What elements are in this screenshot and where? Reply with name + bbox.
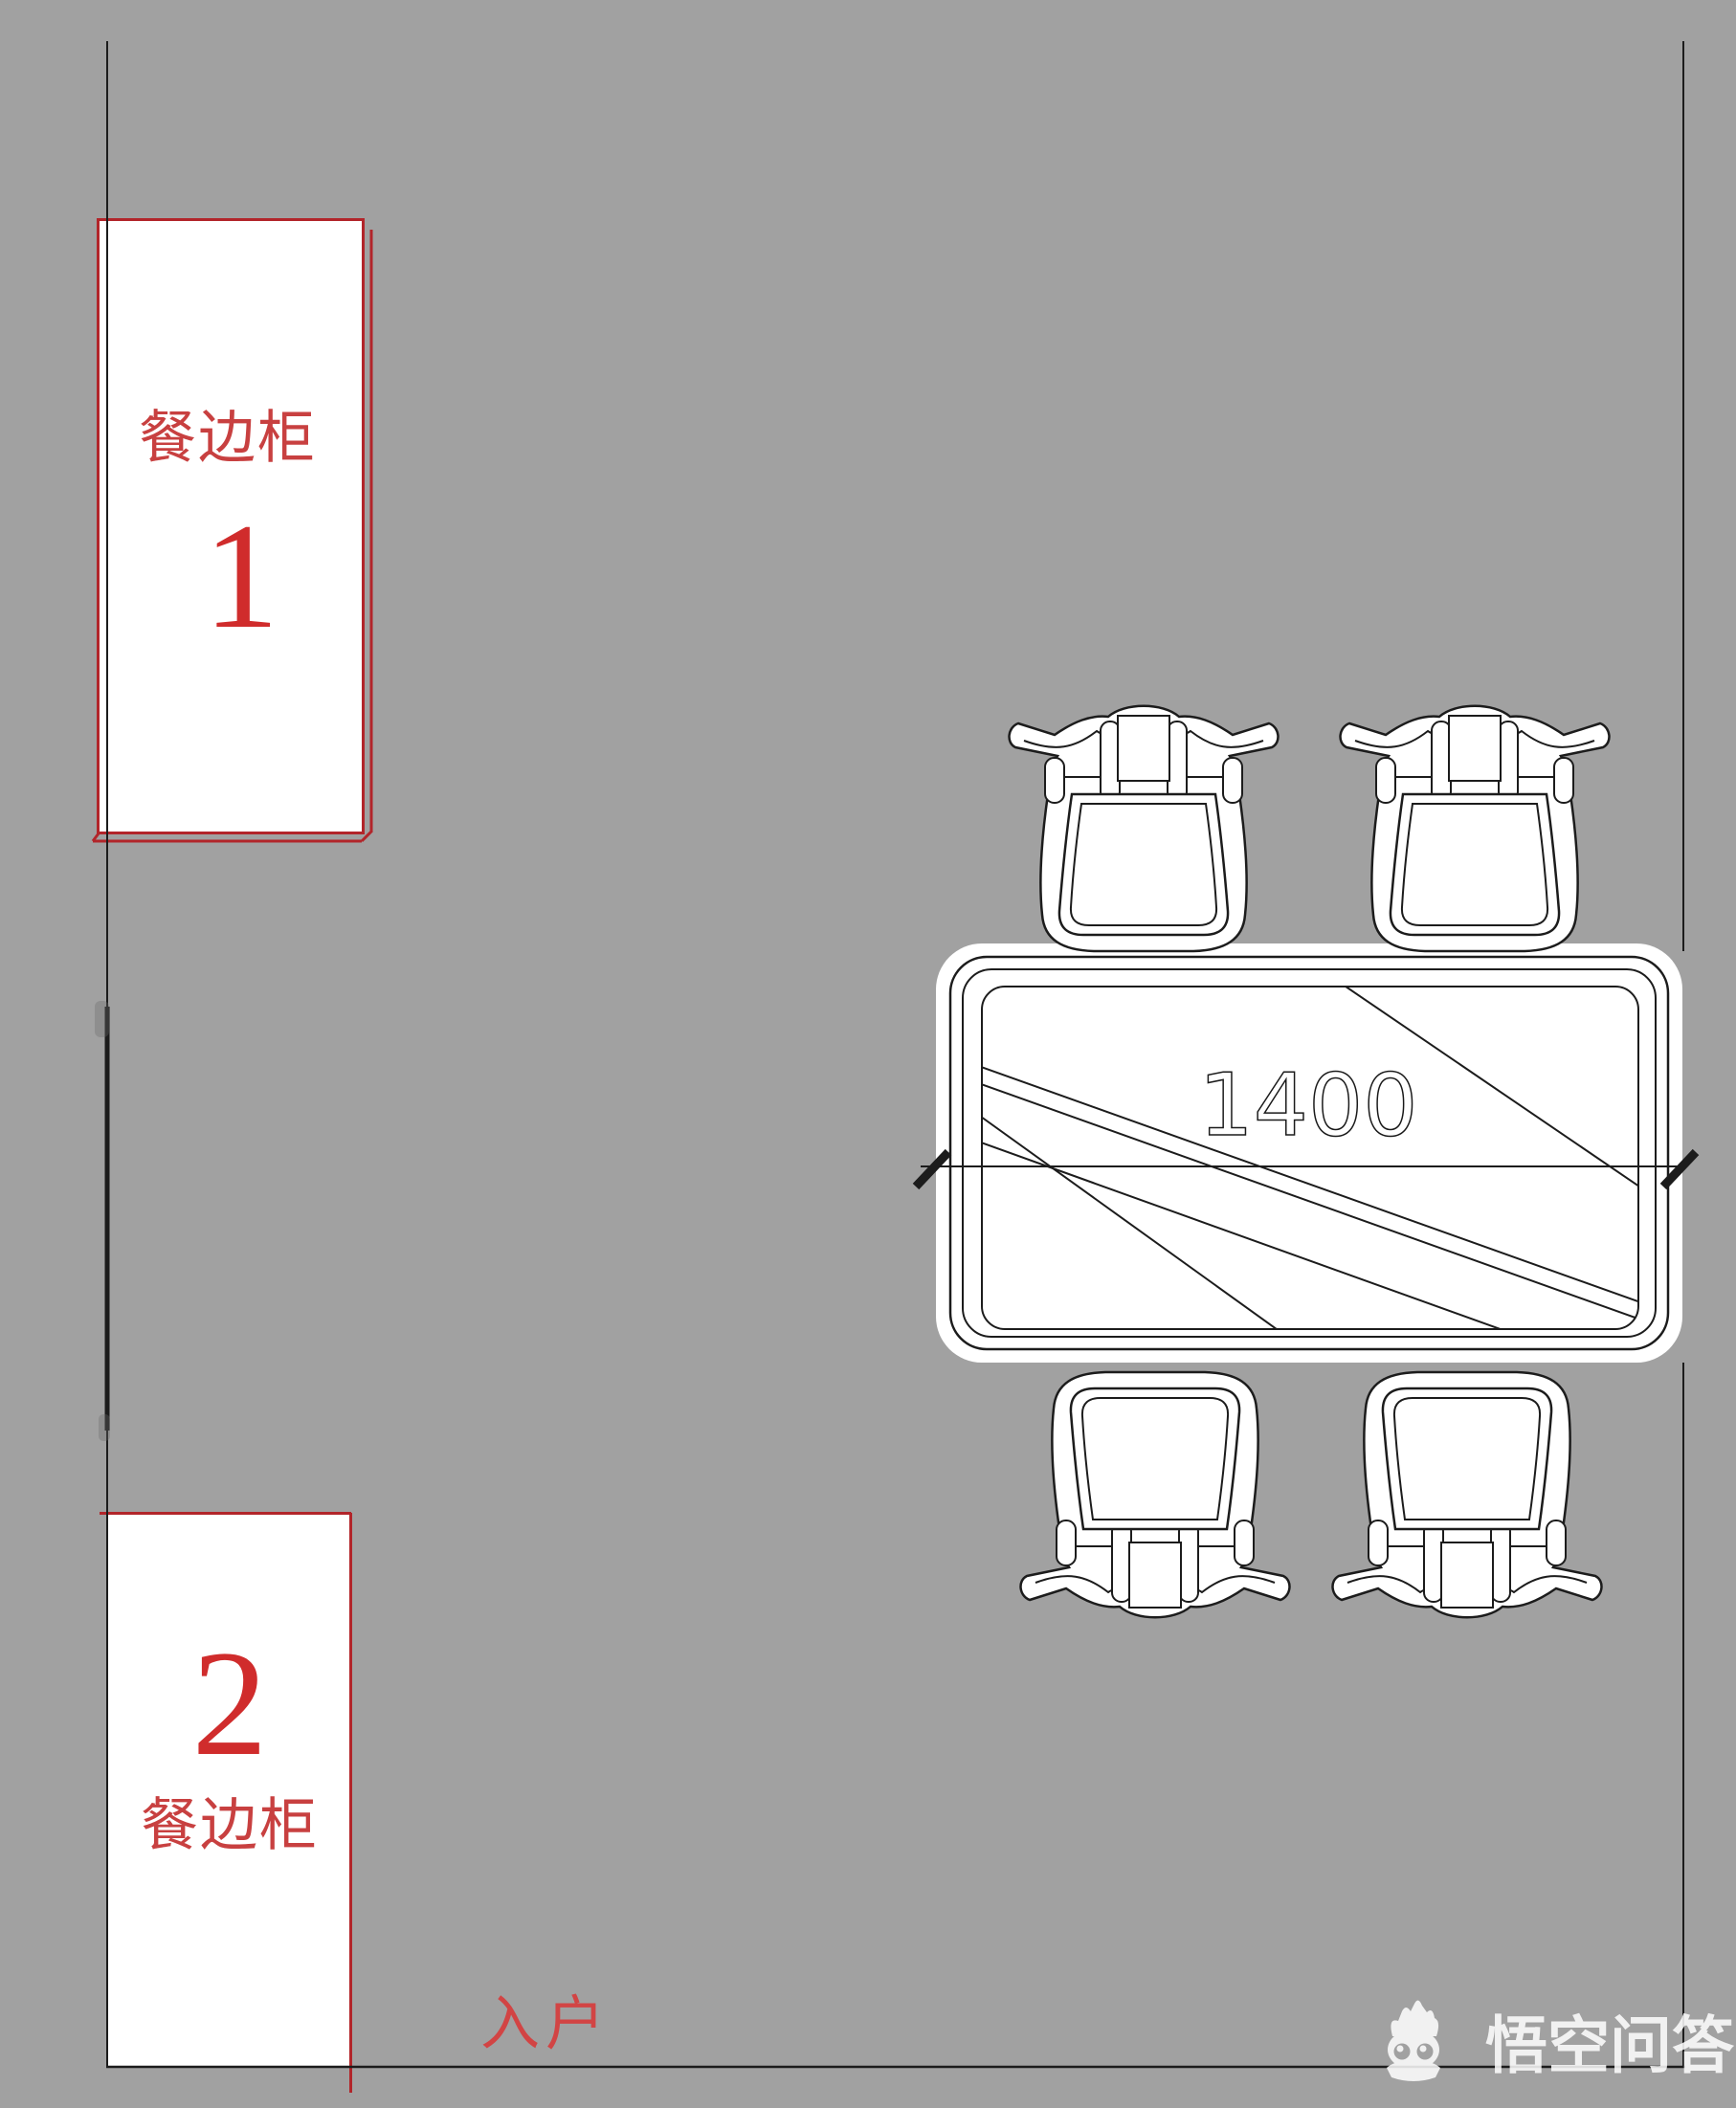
floor-plan-drawing: 1400 餐边柜 1 2 餐边柜 入户 悟空问答 (0, 0, 1736, 2108)
cabinet-1-number: 1 (204, 493, 279, 660)
floor-plan-canvas: 1400 餐边柜 1 2 餐边柜 入户 悟空问答 (0, 0, 1736, 2108)
cabinet-2-number: 2 (192, 1620, 268, 1787)
chair-bottom-right (1333, 1372, 1602, 1617)
chair-bottom-left (1021, 1372, 1290, 1617)
cabinet-1-label: 餐边柜 (139, 407, 317, 470)
entrance-label: 入户 (480, 1992, 611, 2057)
dining-table: 1400 (936, 943, 1684, 1363)
chair-top-left (1010, 706, 1279, 951)
wukong-monkey-logo-icon (1387, 2000, 1440, 2081)
watermark: 悟空问答 (1387, 2000, 1735, 2081)
cabinet-2-label: 餐边柜 (141, 1794, 319, 1857)
chair-top-right (1341, 706, 1610, 951)
table-dimension-label: 1400 (1198, 1055, 1417, 1156)
watermark-text: 悟空问答 (1485, 2010, 1735, 2080)
